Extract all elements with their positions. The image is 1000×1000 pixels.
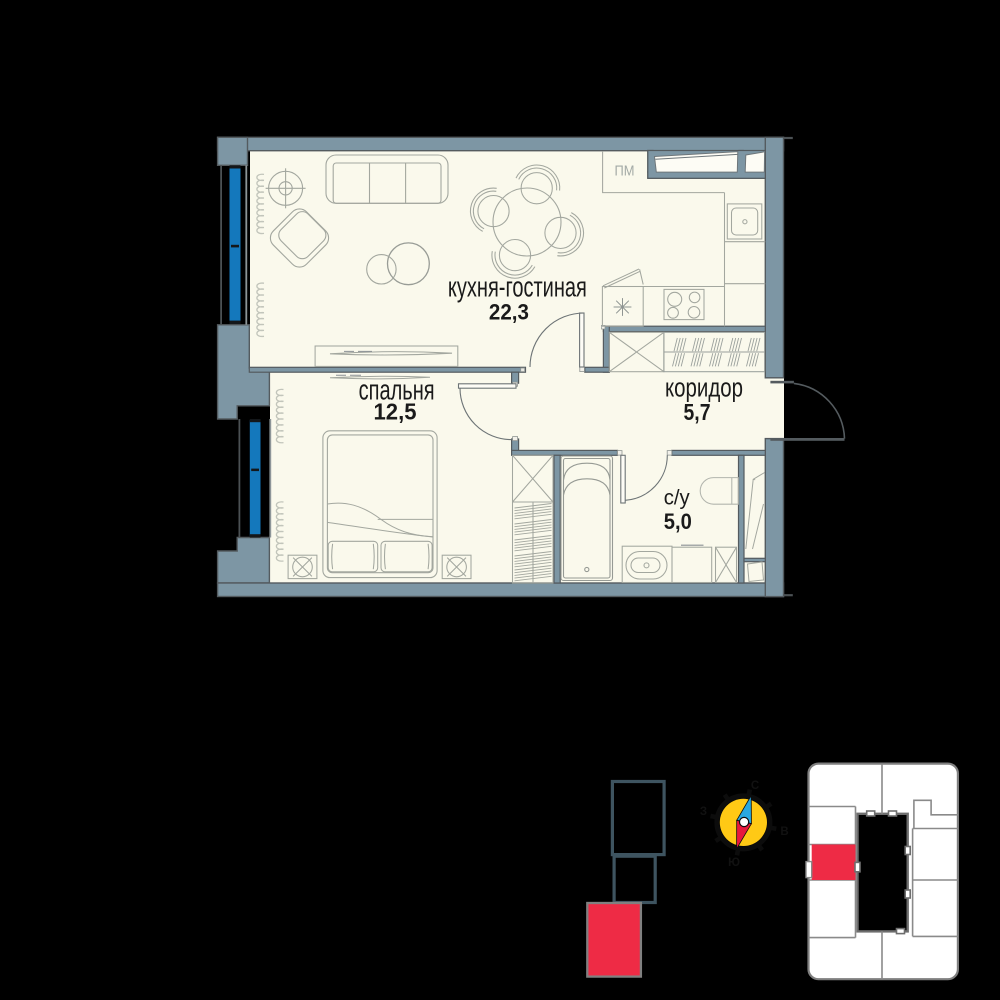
svg-text:коридор: коридор: [665, 373, 743, 403]
svg-text:12,5: 12,5: [374, 399, 417, 425]
svg-text:5,7: 5,7: [684, 399, 711, 425]
svg-text:Ю: Ю: [728, 857, 740, 869]
svg-text:З: З: [700, 806, 707, 818]
svg-text:22,3: 22,3: [489, 300, 529, 325]
svg-text:5,0: 5,0: [664, 509, 692, 534]
svg-text:С: С: [751, 780, 759, 792]
svg-text:В: В: [780, 826, 788, 838]
svg-text:с/у: с/у: [664, 487, 690, 510]
svg-text:ПМ: ПМ: [615, 164, 635, 180]
